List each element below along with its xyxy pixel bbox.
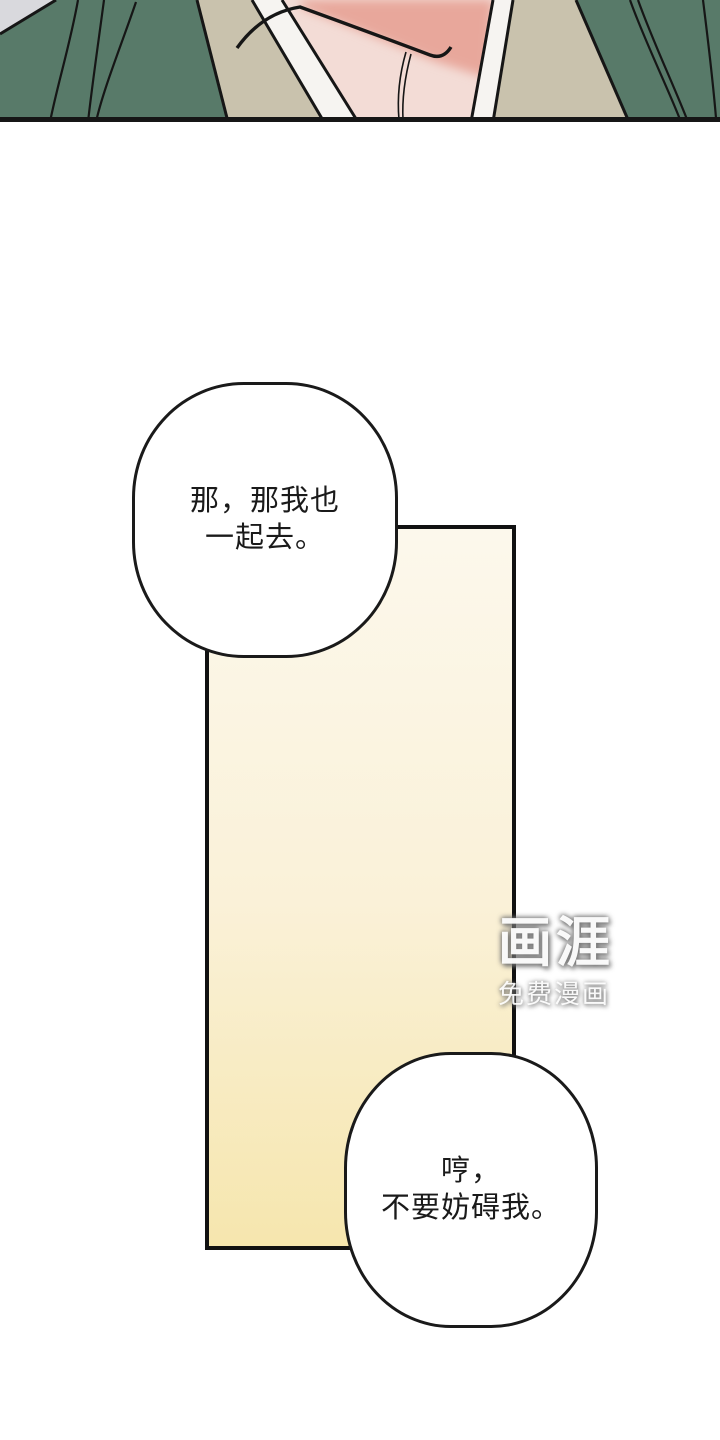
comic-page: 那，那我也 一起去。 哼， 不要妨碍我。 画涯 免费漫画 — [0, 0, 720, 1440]
top-panel-illustration — [0, 0, 720, 122]
panel-bottom-border — [0, 117, 720, 122]
speech-bubble-2-line-1: 哼， — [441, 1153, 501, 1190]
speech-bubble-1-line-1: 那，那我也 — [190, 483, 340, 520]
speech-bubble-1-line-2: 一起去。 — [205, 520, 325, 557]
watermark-logo: 画涯 — [498, 913, 658, 973]
watermark-tagline: 免费漫画 — [498, 979, 658, 1009]
speech-bubble-2: 哼， 不要妨碍我。 — [344, 1052, 598, 1328]
speech-bubble-2-line-2: 不要妨碍我。 — [381, 1190, 561, 1227]
speech-bubble-1: 那，那我也 一起去。 — [132, 382, 398, 658]
watermark: 画涯 免费漫画 — [498, 913, 658, 1009]
